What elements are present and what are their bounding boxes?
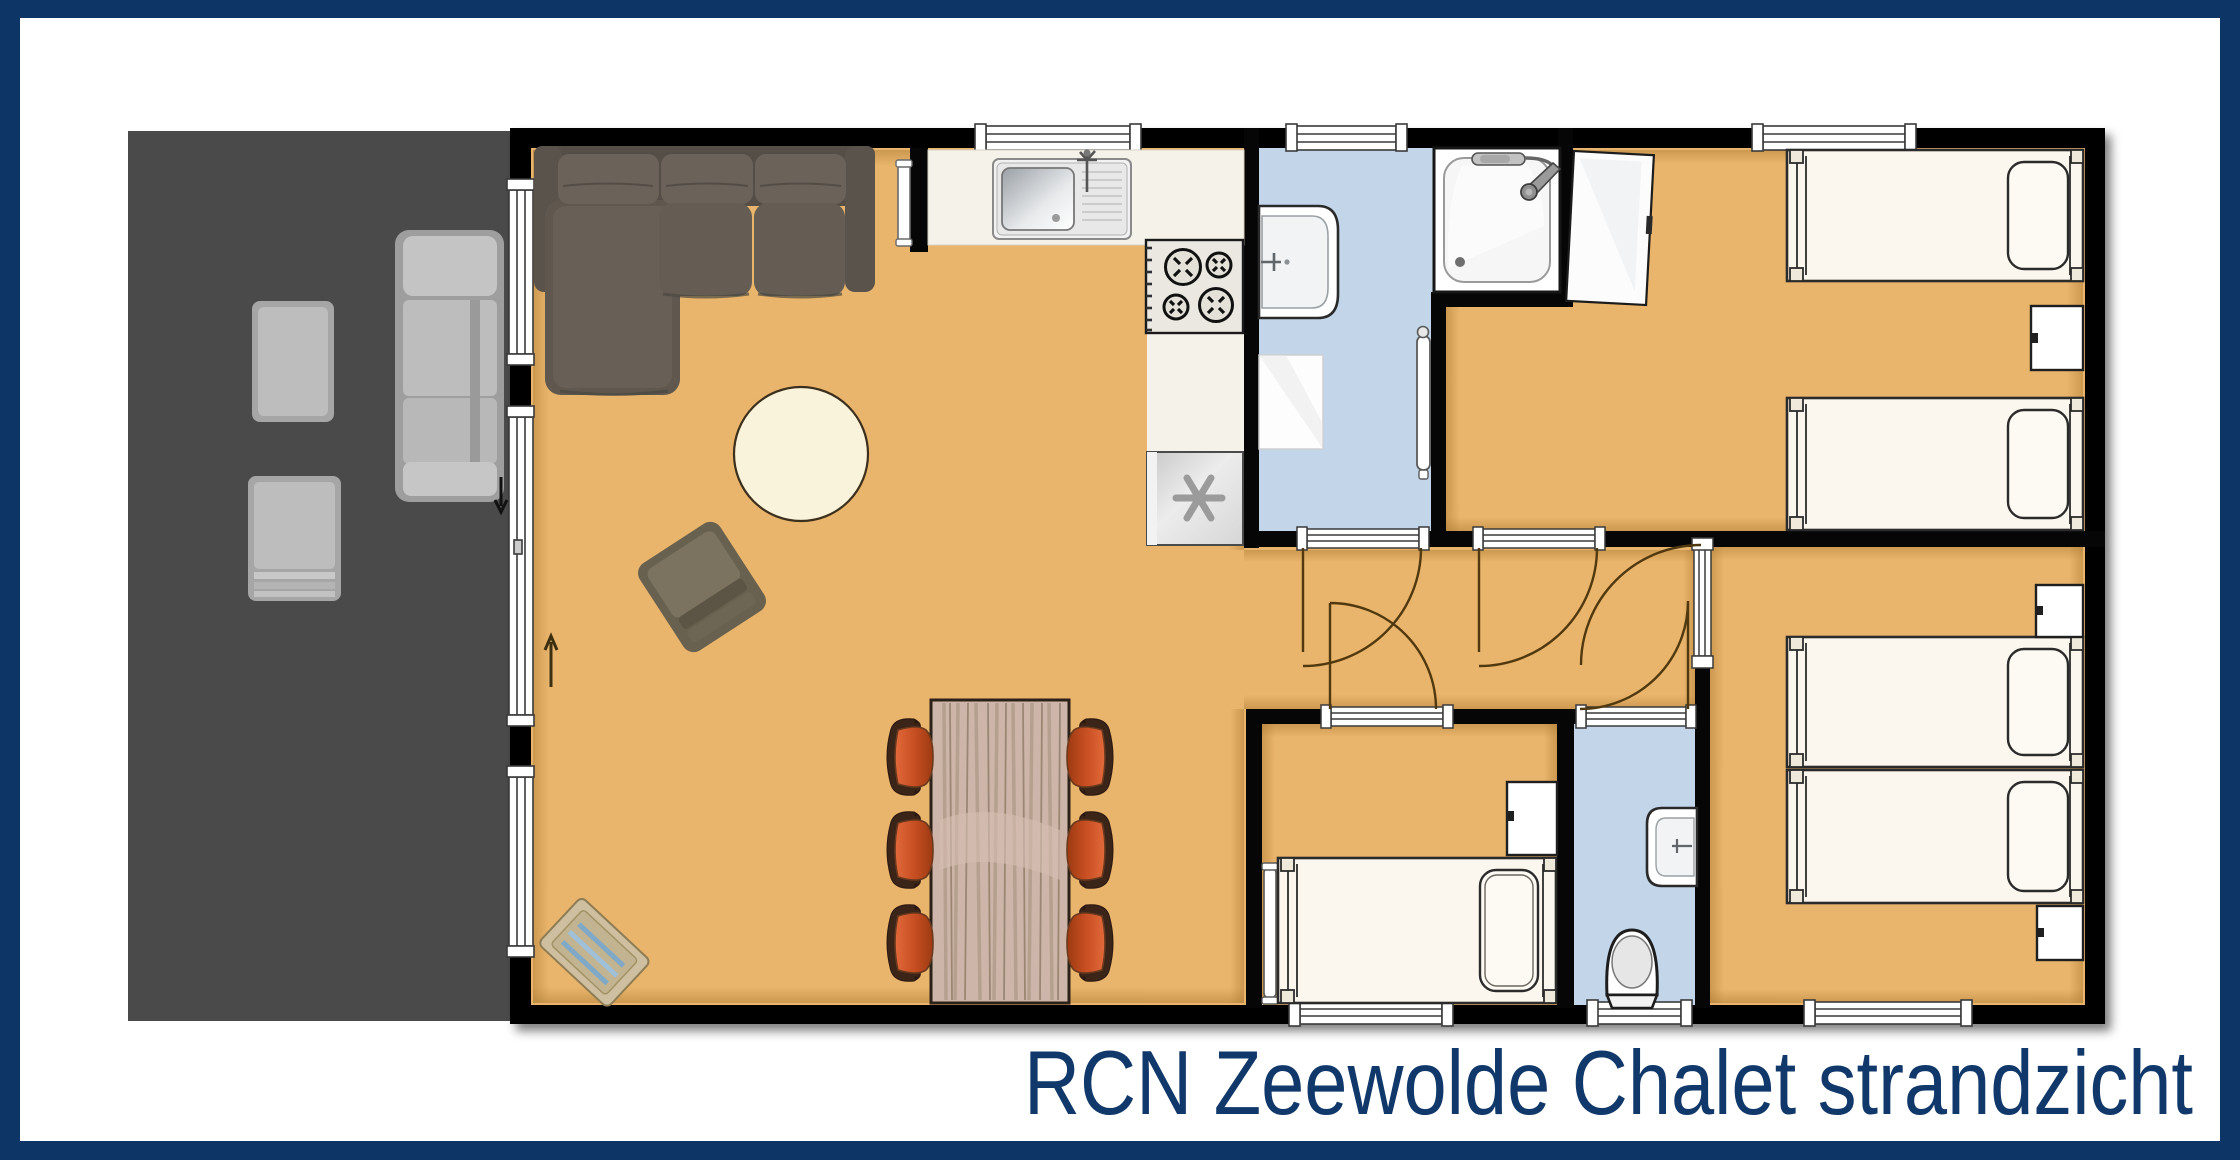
svg-text:RCN Zeewolde Chalet strandzich: RCN Zeewolde Chalet strandzicht	[1024, 1033, 2193, 1134]
